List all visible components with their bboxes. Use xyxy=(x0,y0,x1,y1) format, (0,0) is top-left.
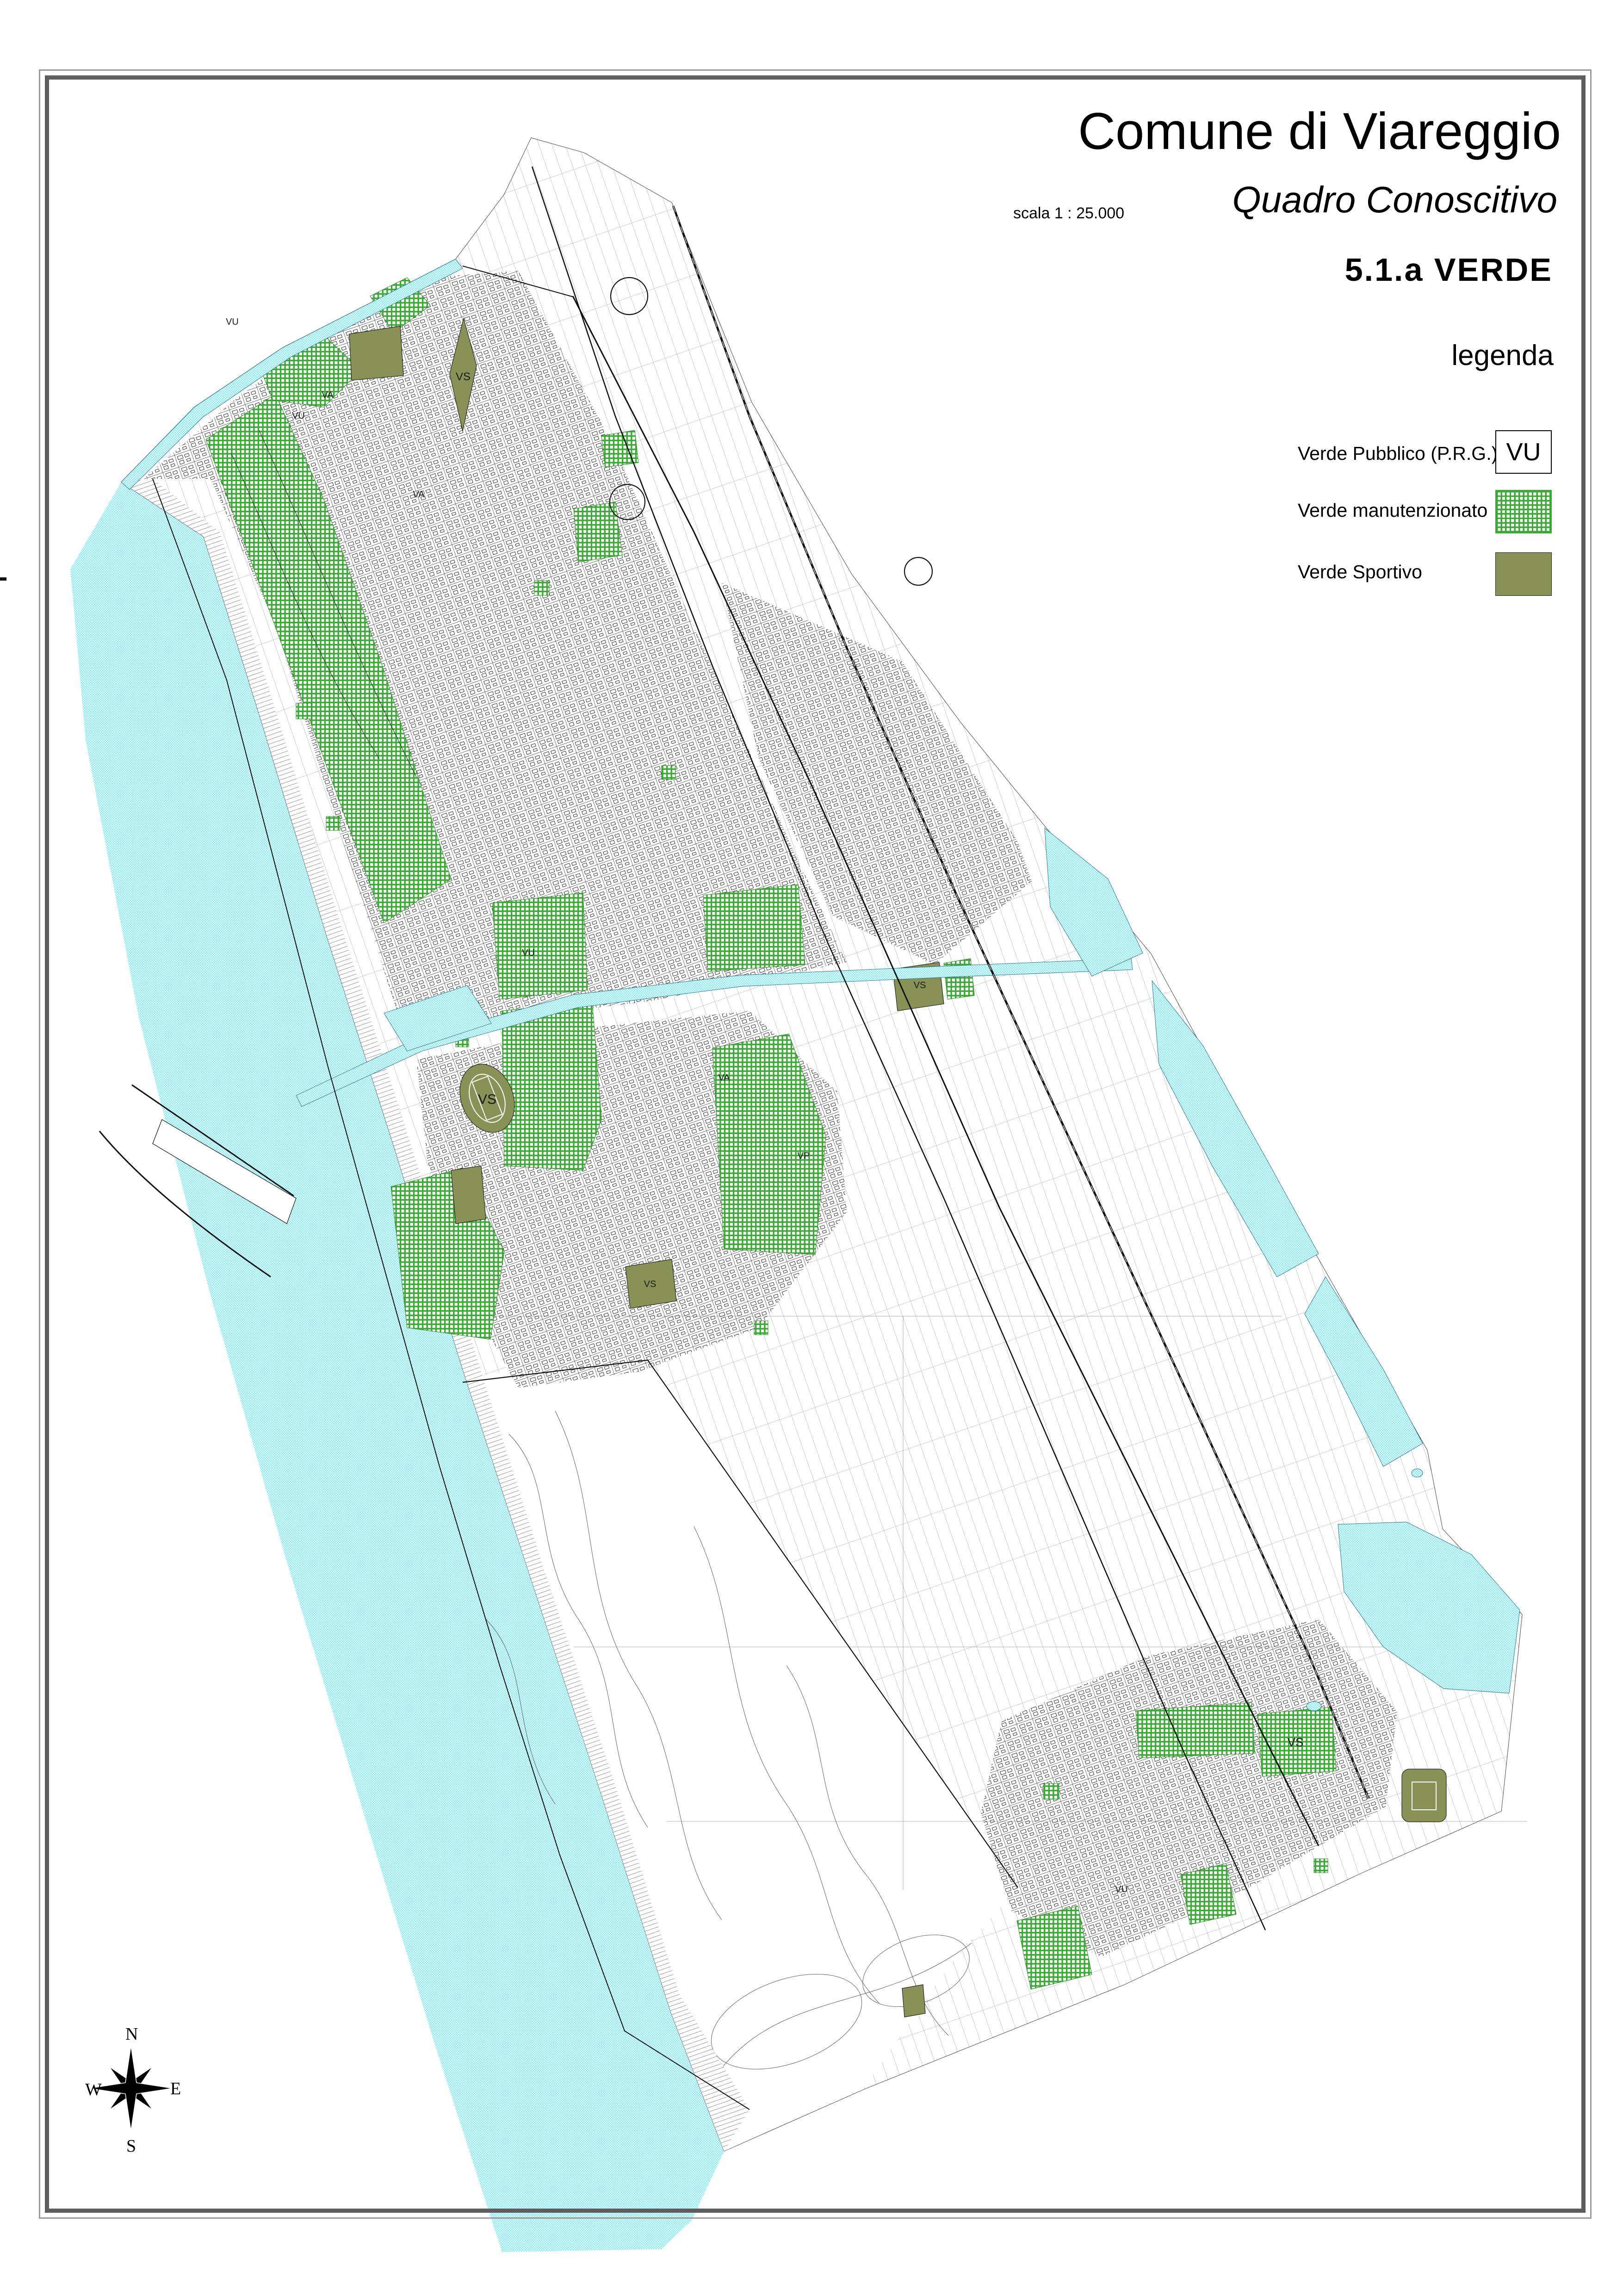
legend-swatch-vu-box: VU xyxy=(1495,430,1552,474)
page: { "header": { "title": "Comune di Viareg… xyxy=(0,0,1623,2296)
page-title: Comune di Viareggio xyxy=(1078,105,1561,157)
compass-south-label: S xyxy=(126,2137,136,2155)
compass-north-label: N xyxy=(125,2025,138,2043)
legend-vu-code: VU xyxy=(1506,438,1541,466)
legend-heading: legenda xyxy=(1451,341,1554,370)
compass-rose: N S W E xyxy=(82,2018,184,2161)
legend-label-verde-pubblico: Verde Pubblico (P.R.G.) xyxy=(1298,444,1498,463)
page-subtitle: Quadro Conoscitivo xyxy=(1232,181,1557,218)
legend-swatch-green-grid xyxy=(1495,490,1552,533)
legend-swatch-olive-solid xyxy=(1495,552,1552,596)
scale-label: scala 1 : 25.000 xyxy=(1013,205,1124,221)
legend-label-verde-manutenzionato: Verde manutenzionato xyxy=(1298,501,1487,520)
compass-east-label: E xyxy=(170,2080,181,2098)
page-frame-inner xyxy=(45,75,1586,2213)
compass-west-label: W xyxy=(85,2081,102,2098)
registration-tick xyxy=(0,577,6,581)
legend-label-verde-sportivo: Verde Sportivo xyxy=(1298,563,1422,582)
sheet-code: 5.1.a VERDE xyxy=(1345,254,1553,286)
